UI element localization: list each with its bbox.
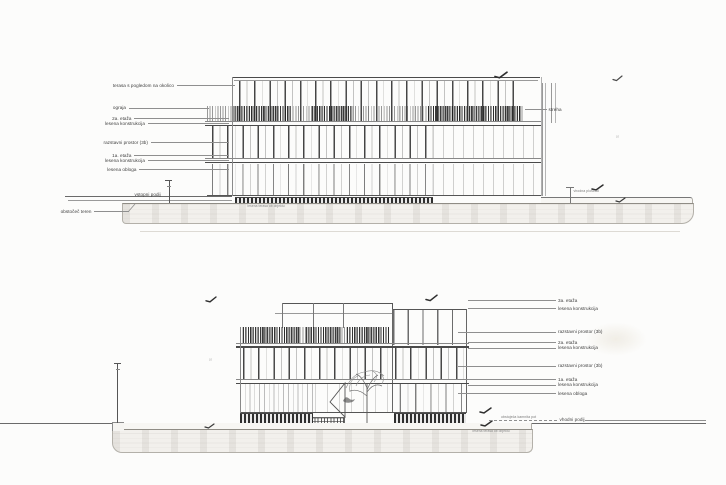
building-edge (466, 309, 467, 413)
annotation-label: lesena konstrukcija (558, 382, 598, 387)
leader-line (458, 332, 556, 333)
level-marker: S (208, 358, 213, 361)
bird-icon (205, 296, 217, 303)
leader-line (489, 420, 557, 421)
annotation-label: 1a. etaža (558, 377, 577, 382)
bird-icon (204, 423, 215, 429)
parapet-post (343, 303, 344, 328)
bird-icon (479, 407, 492, 414)
platform-curb (112, 422, 124, 432)
annotation-label: lesena konstrukcija (558, 306, 598, 311)
entry-label: vhodni podij (560, 417, 585, 422)
annotation-label: 2a. etaža (558, 340, 577, 345)
architectural-sheet: S terasa s pogledom na okolico ograja 2a… (0, 0, 726, 485)
leader-line (458, 393, 556, 394)
flag-icon (116, 369, 120, 370)
leader-line (458, 366, 556, 367)
slat-screen-dense (243, 327, 300, 344)
parapet-post (313, 303, 314, 328)
figure-sketch (341, 393, 357, 404)
elevation-bottom: S 3a. etaža lesena konstrukcija razstavn… (0, 0, 726, 485)
annotation-label: 3a. etaža (558, 298, 577, 303)
path-note: obstoječa kamnita pot (501, 416, 536, 420)
paper-smudge (585, 322, 647, 356)
annotation-label: lesena konstrukcija (558, 345, 598, 350)
leader-line (468, 379, 556, 380)
annotation-label: razstavni prostor (3b) (558, 363, 603, 368)
terrain-platform (112, 429, 533, 453)
annotation-label: lesena obloga (558, 391, 587, 396)
leader-line (468, 308, 556, 309)
bird-icon (425, 294, 438, 302)
leader-line (468, 342, 556, 343)
flag-icon (114, 363, 121, 364)
column-grid-lower (400, 384, 466, 413)
slat-screen-lower (240, 384, 315, 413)
flag-pole (117, 363, 118, 423)
slat-screen-dense (347, 327, 389, 344)
leader-line (585, 420, 706, 421)
annotation-label: razstavni prostor (3b) (558, 329, 603, 334)
building-edge (240, 327, 241, 413)
leader-line (468, 385, 556, 386)
leader-line (468, 348, 556, 349)
floor-slab (236, 343, 469, 344)
column-grid-box (393, 310, 466, 345)
base-note: lesena terasa ob objektu (473, 430, 510, 433)
slat-screen-dense (306, 327, 341, 344)
roof-line (275, 313, 392, 314)
leader-line (468, 300, 556, 301)
roof-line (282, 303, 392, 304)
parapet-post (282, 303, 283, 328)
